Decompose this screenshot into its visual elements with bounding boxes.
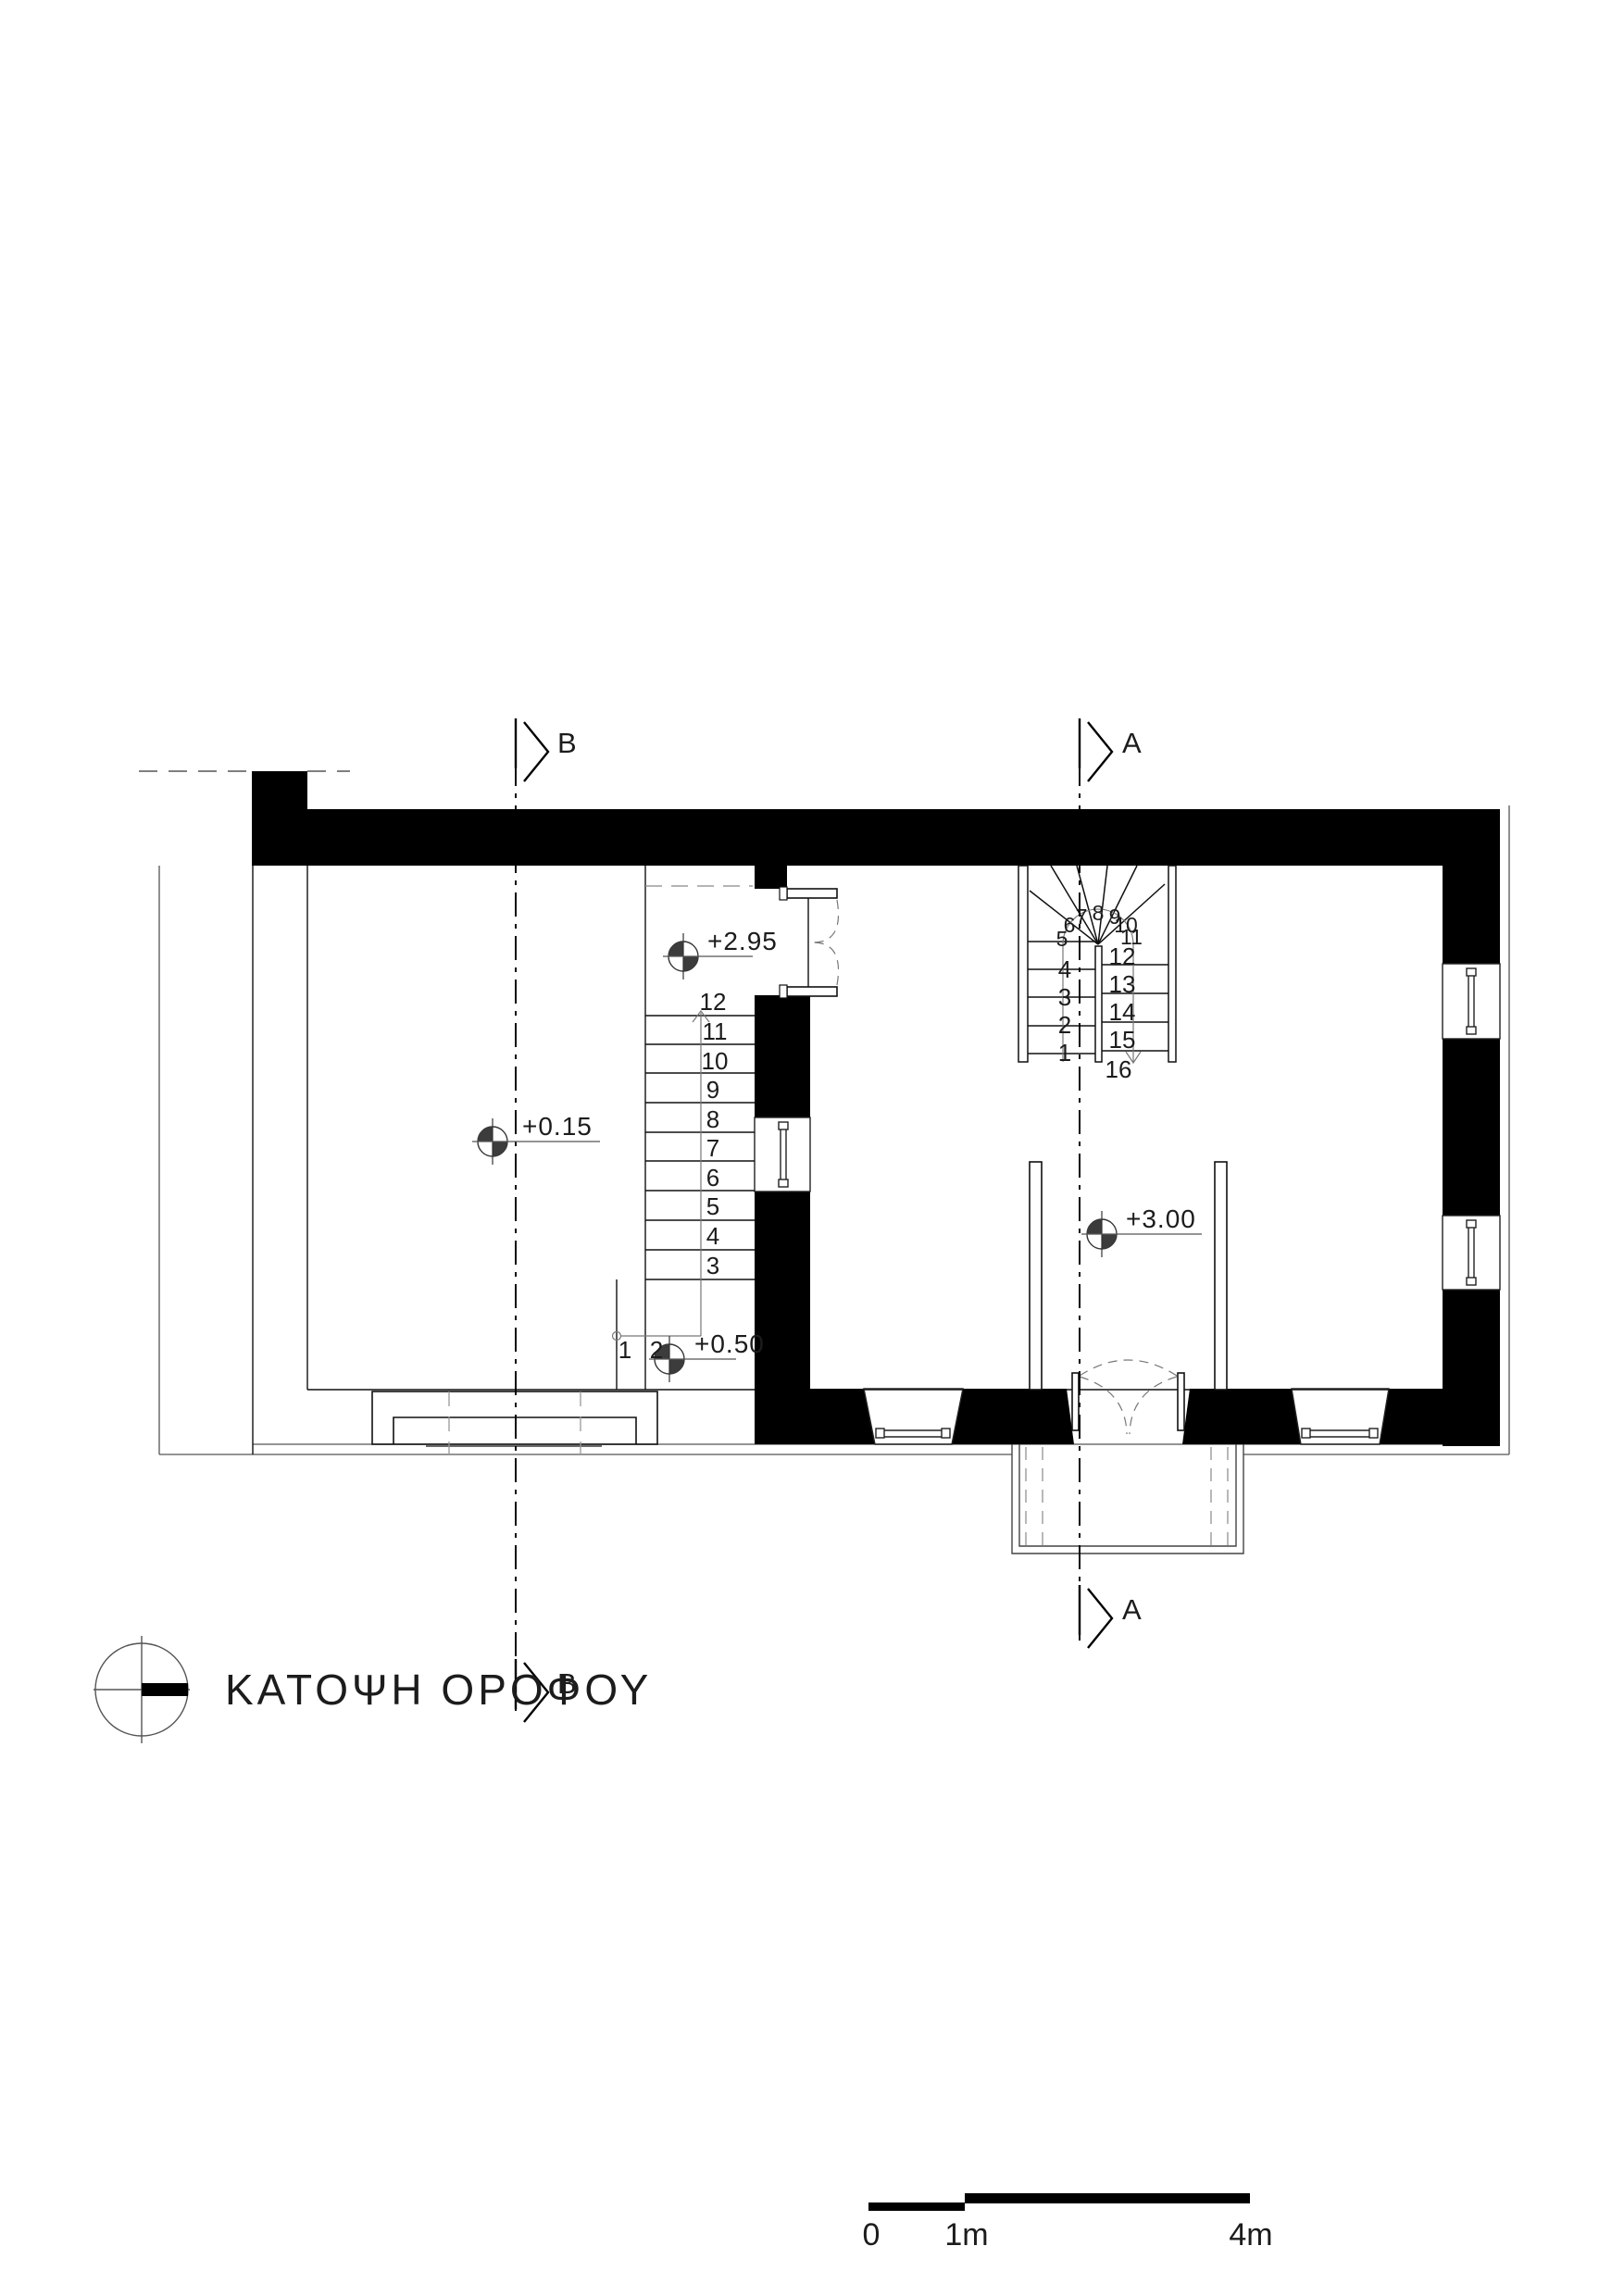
section-label-b-top: B	[557, 727, 577, 759]
section-lines: B B A A	[516, 718, 1142, 1722]
stairhall-door	[780, 887, 839, 998]
window-middle-wall	[755, 1117, 810, 1192]
step-label: 1	[618, 1336, 631, 1364]
wall-north	[307, 809, 1500, 866]
drawing-title: ΚΑΤΟΨΗ ΟΡΟΦΟΥ	[225, 1666, 652, 1714]
north-symbol	[94, 1636, 190, 1743]
scale-bar: 0 1m 4m	[863, 2193, 1273, 2252]
wall-face-lines	[253, 866, 1443, 1454]
roof-outline	[159, 805, 1509, 1454]
step-label: 6	[706, 1164, 719, 1192]
stair-u	[1018, 866, 1176, 1063]
scale-segment-4m	[965, 2193, 1250, 2203]
step-label: 13	[1109, 970, 1136, 998]
step-label: 10	[702, 1047, 729, 1075]
section-label-a-top: A	[1122, 727, 1142, 759]
hidden-edges-dashed	[449, 1391, 581, 1454]
window-east-upper	[1443, 964, 1500, 1039]
partitions	[1030, 1162, 1227, 1390]
walls-poche	[252, 771, 1500, 1446]
section-flag-a-bottom	[1088, 1589, 1112, 1648]
window-south-east	[1292, 1389, 1389, 1444]
step-label: 1	[1058, 1039, 1071, 1067]
stair-u-wall-right	[1168, 866, 1176, 1062]
balcony	[1012, 1444, 1243, 1554]
scale-tick-4m: 4m	[1229, 2217, 1272, 2252]
entry-steps	[372, 1391, 657, 1446]
plan-canvas: B B A A +2.95 +0.15	[0, 0, 1624, 2296]
step-label: 2	[1058, 1011, 1071, 1039]
scale-tick-0: 0	[863, 2217, 881, 2252]
level-text-295: +2.95	[707, 927, 778, 955]
step-label: 16	[1106, 1055, 1132, 1083]
walk-line	[613, 1011, 710, 1341]
step-label: 5	[706, 1192, 719, 1220]
step-label: 7	[1076, 905, 1088, 929]
stair-u-divider	[1095, 946, 1102, 1062]
floor-plan-sheet: B B A A +2.95 +0.15	[0, 0, 1624, 2296]
step-label: 4	[706, 1222, 719, 1250]
scale-segment-1m	[868, 2202, 965, 2211]
step-label: 3	[706, 1252, 719, 1279]
step-label: 6	[1064, 913, 1076, 937]
step-label: 8	[706, 1105, 719, 1133]
stair-u-wall-left	[1018, 866, 1028, 1062]
level-text-015: +0.15	[522, 1112, 593, 1141]
section-label-a-bottom: A	[1122, 1593, 1142, 1626]
balcony-door	[1072, 1360, 1184, 1434]
step-label: 12	[1109, 942, 1136, 970]
step-label: 15	[1109, 1026, 1136, 1054]
window-east-lower	[1443, 1216, 1500, 1290]
level-marker-295: +2.95	[663, 927, 778, 980]
step-label: 14	[1109, 998, 1136, 1026]
step-label: 9	[706, 1076, 719, 1104]
section-flag-b-top	[524, 722, 548, 781]
window-south-west	[864, 1389, 963, 1444]
level-marker-015: +0.15	[472, 1112, 600, 1165]
section-flag-a-top	[1088, 722, 1112, 781]
step-label: 3	[1058, 983, 1071, 1011]
step-label: 8	[1093, 901, 1105, 925]
step-label: 11	[703, 1017, 728, 1045]
scale-tick-1m: 1m	[944, 2217, 988, 2252]
north-pointer-bar	[142, 1683, 188, 1696]
step-label: 7	[706, 1134, 719, 1162]
level-marker-050: +0.50	[649, 1329, 765, 1382]
step-label: 12	[700, 988, 727, 1016]
wall-stub-top-left	[252, 771, 307, 866]
level-text-050: +0.50	[694, 1329, 765, 1358]
level-text-300: +3.00	[1126, 1204, 1196, 1233]
level-marker-300: +3.00	[1081, 1204, 1202, 1257]
step-label: 4	[1058, 955, 1071, 983]
step-label: 2	[650, 1336, 663, 1364]
